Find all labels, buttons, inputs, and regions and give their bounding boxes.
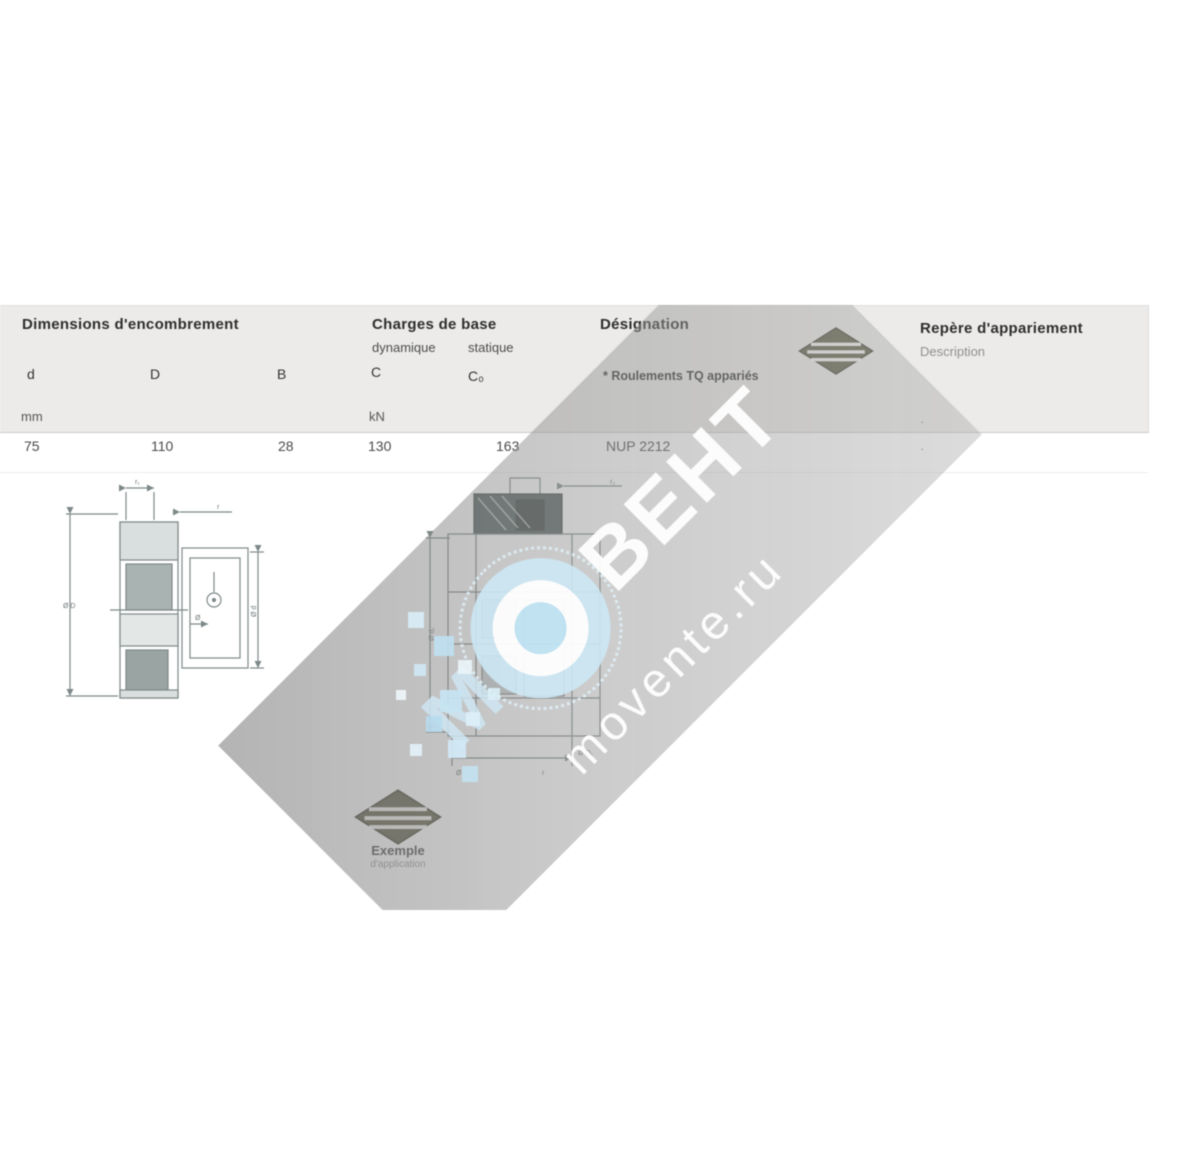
- left-dim-right-label: Ø d: [251, 606, 258, 617]
- center-note-1: Ø: [456, 770, 462, 777]
- row-value-C0: 163: [496, 438, 519, 454]
- page-content: Dimensions d'encombrement Charges de bas…: [0, 0, 1200, 1165]
- unit-kn: kN: [369, 409, 385, 424]
- header-repere: Repère d'appariement: [920, 320, 1083, 337]
- designation-footnote: * Roulements TQ appariés: [603, 369, 759, 383]
- row-value-d: 75: [24, 438, 40, 454]
- left-dim-r-label: r: [217, 504, 220, 511]
- center-dim-bottom-label: Ø D₁: [578, 750, 593, 757]
- logo-caption: Exemple: [338, 843, 458, 858]
- left-dim-top-label: r₁: [135, 479, 140, 486]
- subheader-dynamique: dynamique: [372, 340, 436, 355]
- repere-mark-1: ·: [920, 414, 924, 429]
- repere-mark-2: ·: [920, 441, 924, 456]
- col-C0: C₀: [468, 368, 484, 384]
- subheader-statique: statique: [468, 340, 514, 355]
- left-dim-left-label: Ø D: [63, 603, 75, 610]
- col-C: C: [371, 364, 381, 380]
- bearing-drawing-left: r₁ r Ø D Ø Ø d: [62, 472, 272, 707]
- unit-mm: mm: [21, 409, 43, 424]
- bearing-drawing-center: r₂ Ø d₁ Ø D₁ Ø r: [424, 476, 639, 781]
- row-value-D: 110: [151, 438, 173, 454]
- left-dim-inner-label: Ø: [195, 615, 201, 622]
- brand-diamond-logo-top: [797, 326, 875, 376]
- col-d: d: [27, 366, 35, 382]
- col-B: B: [277, 366, 286, 382]
- header-designation: Désignation: [600, 316, 689, 333]
- row-value-B: 28: [278, 438, 294, 454]
- subheader-repere: Description: [920, 344, 985, 359]
- center-note-2: r: [542, 770, 545, 777]
- col-D: D: [150, 366, 160, 382]
- center-dim-left-label: Ø d₁: [429, 627, 436, 641]
- header-charges: Charges de base: [372, 316, 497, 333]
- logo-subcaption: d'application: [338, 859, 458, 870]
- brand-diamond-logo-bottom: [352, 788, 444, 846]
- row-value-designation: NUP 2212: [606, 438, 670, 454]
- header-dimensions: Dimensions d'encombrement: [22, 316, 239, 333]
- center-dim-top-label: r₂: [610, 479, 615, 486]
- row-value-C: 130: [368, 438, 391, 454]
